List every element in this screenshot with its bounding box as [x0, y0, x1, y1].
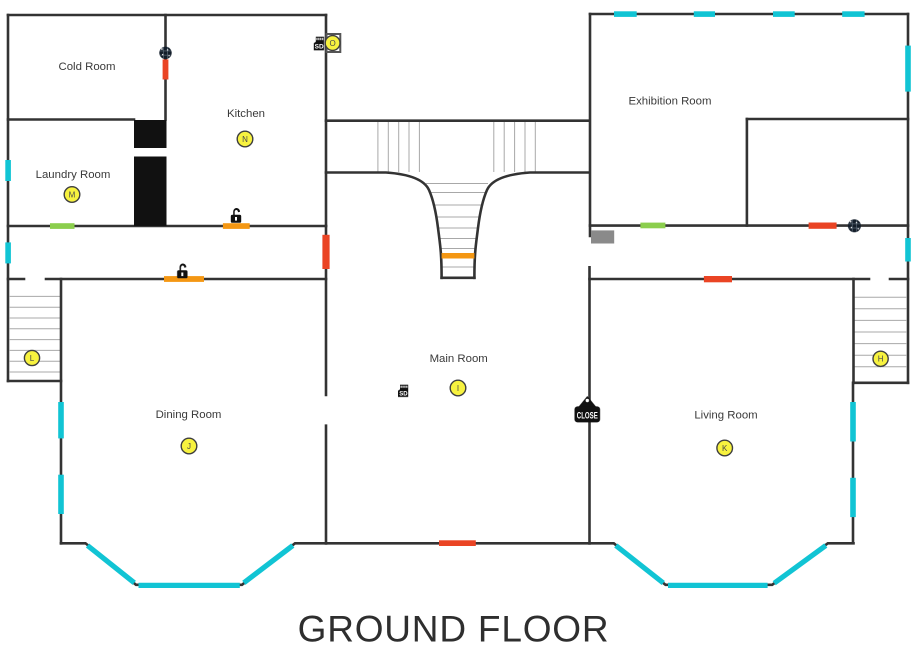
- svg-text:Exhibition Room: Exhibition Room: [629, 96, 712, 108]
- svg-text:O: O: [329, 39, 335, 48]
- svg-text:H: H: [878, 355, 884, 364]
- svg-text:Cold Room: Cold Room: [59, 61, 116, 73]
- svg-text:SD: SD: [399, 391, 408, 397]
- svg-text:CLOSE: CLOSE: [577, 410, 598, 420]
- svg-text:Kitchen: Kitchen: [227, 108, 265, 120]
- svg-text:GROUND FLOOR: GROUND FLOOR: [298, 609, 610, 650]
- svg-text:M: M: [69, 190, 76, 199]
- svg-text:Living Room: Living Room: [694, 410, 757, 422]
- svg-text:N: N: [242, 135, 248, 144]
- svg-text:SD: SD: [315, 44, 324, 51]
- svg-text:Dining Room: Dining Room: [156, 409, 222, 421]
- svg-text:L: L: [30, 354, 35, 363]
- svg-text:Main Room: Main Room: [430, 353, 488, 365]
- svg-text:I: I: [457, 384, 459, 393]
- svg-text:K: K: [722, 444, 728, 453]
- svg-text:Laundry Room: Laundry Room: [36, 169, 111, 181]
- svg-text:J: J: [187, 442, 191, 451]
